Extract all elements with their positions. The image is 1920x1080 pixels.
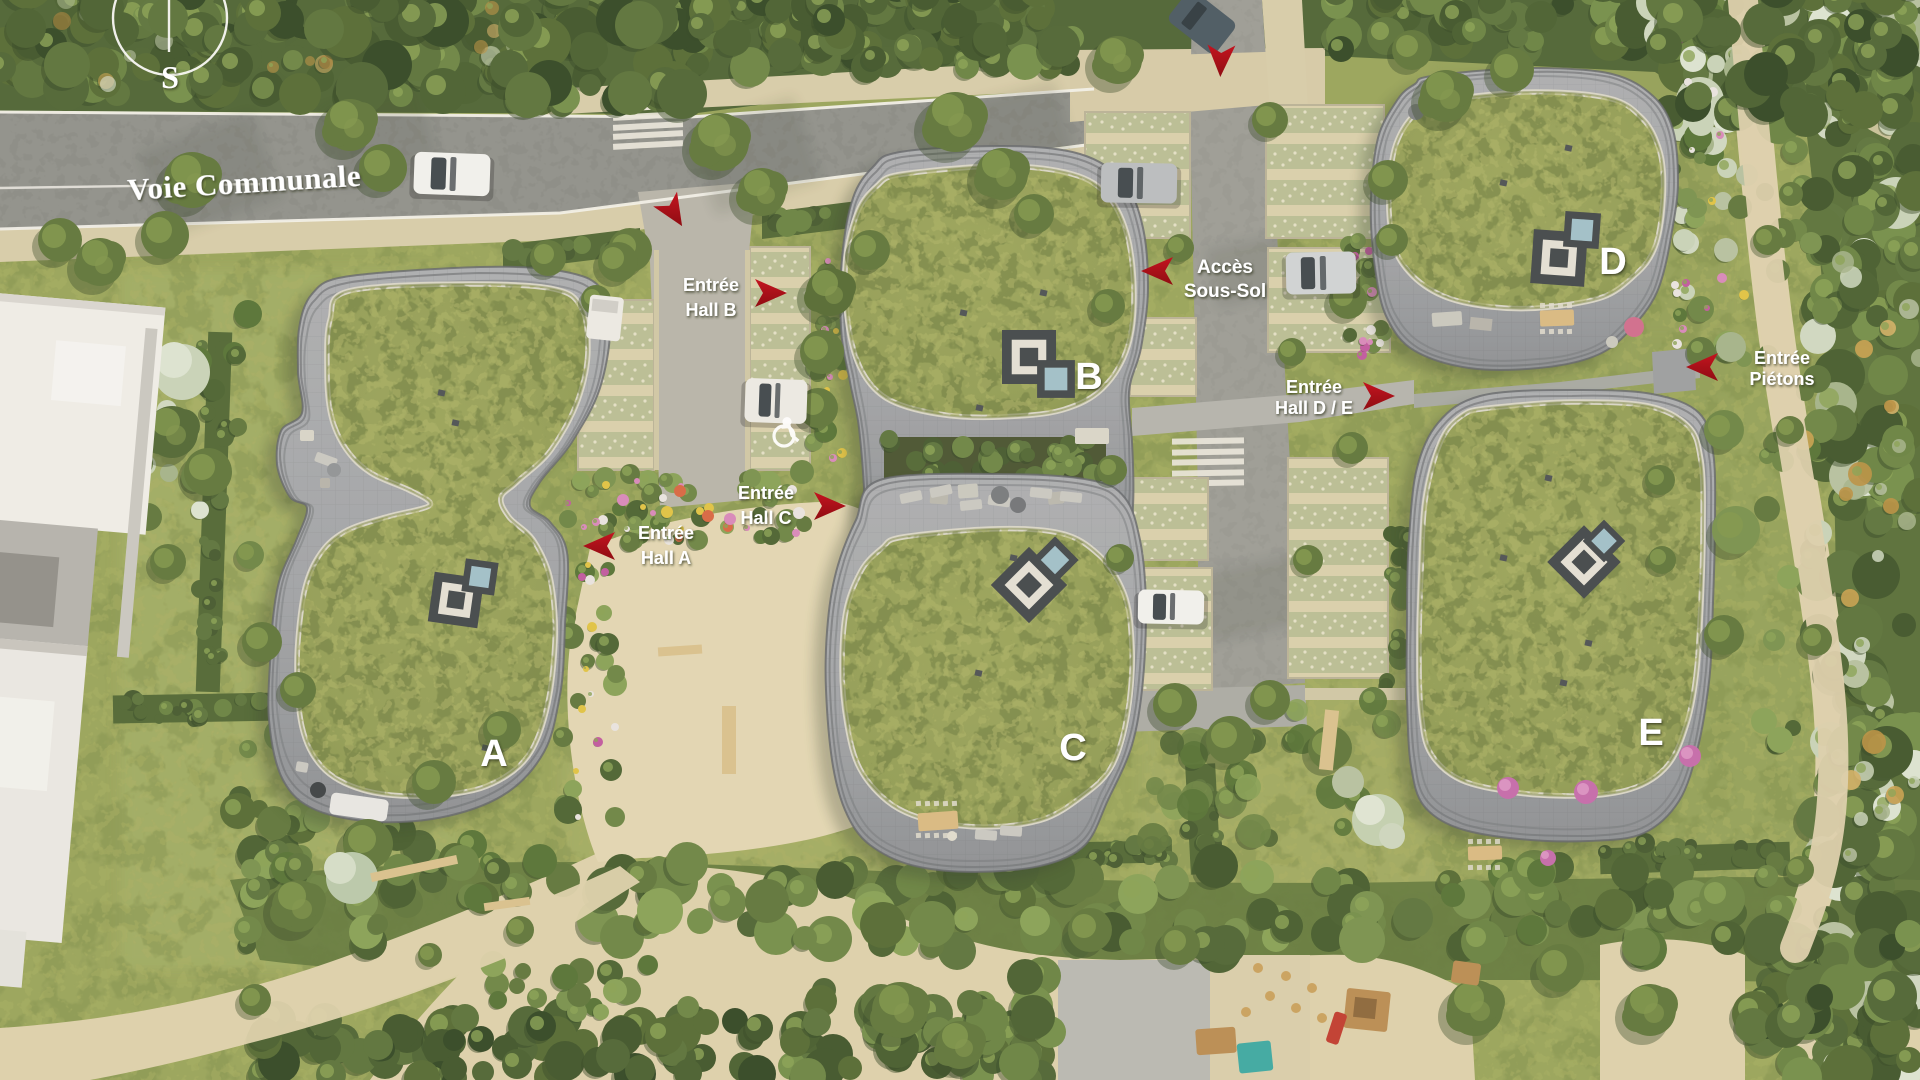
svg-text:E: E — [1638, 712, 1663, 754]
svg-text:Sous-Sol: Sous-Sol — [1184, 281, 1266, 302]
svg-text:Hall C: Hall C — [740, 508, 791, 528]
svg-text:Entrée: Entrée — [738, 483, 794, 503]
svg-text:D: D — [1599, 241, 1626, 283]
svg-text:Hall D / E: Hall D / E — [1275, 398, 1353, 418]
svg-text:Entrée: Entrée — [1286, 377, 1342, 397]
svg-text:Accès: Accès — [1197, 257, 1253, 278]
svg-text:Hall B: Hall B — [685, 300, 736, 320]
svg-text:A: A — [480, 733, 507, 775]
svg-text:Hall A: Hall A — [641, 548, 691, 568]
svg-text:Entrée: Entrée — [1754, 348, 1810, 368]
svg-text:Entrée: Entrée — [683, 275, 739, 295]
svg-text:B: B — [1075, 356, 1102, 398]
svg-text:Entrée: Entrée — [638, 523, 694, 543]
svg-text:Piétons: Piétons — [1749, 369, 1814, 389]
svg-text:C: C — [1059, 727, 1086, 769]
svg-text:S: S — [161, 59, 179, 95]
